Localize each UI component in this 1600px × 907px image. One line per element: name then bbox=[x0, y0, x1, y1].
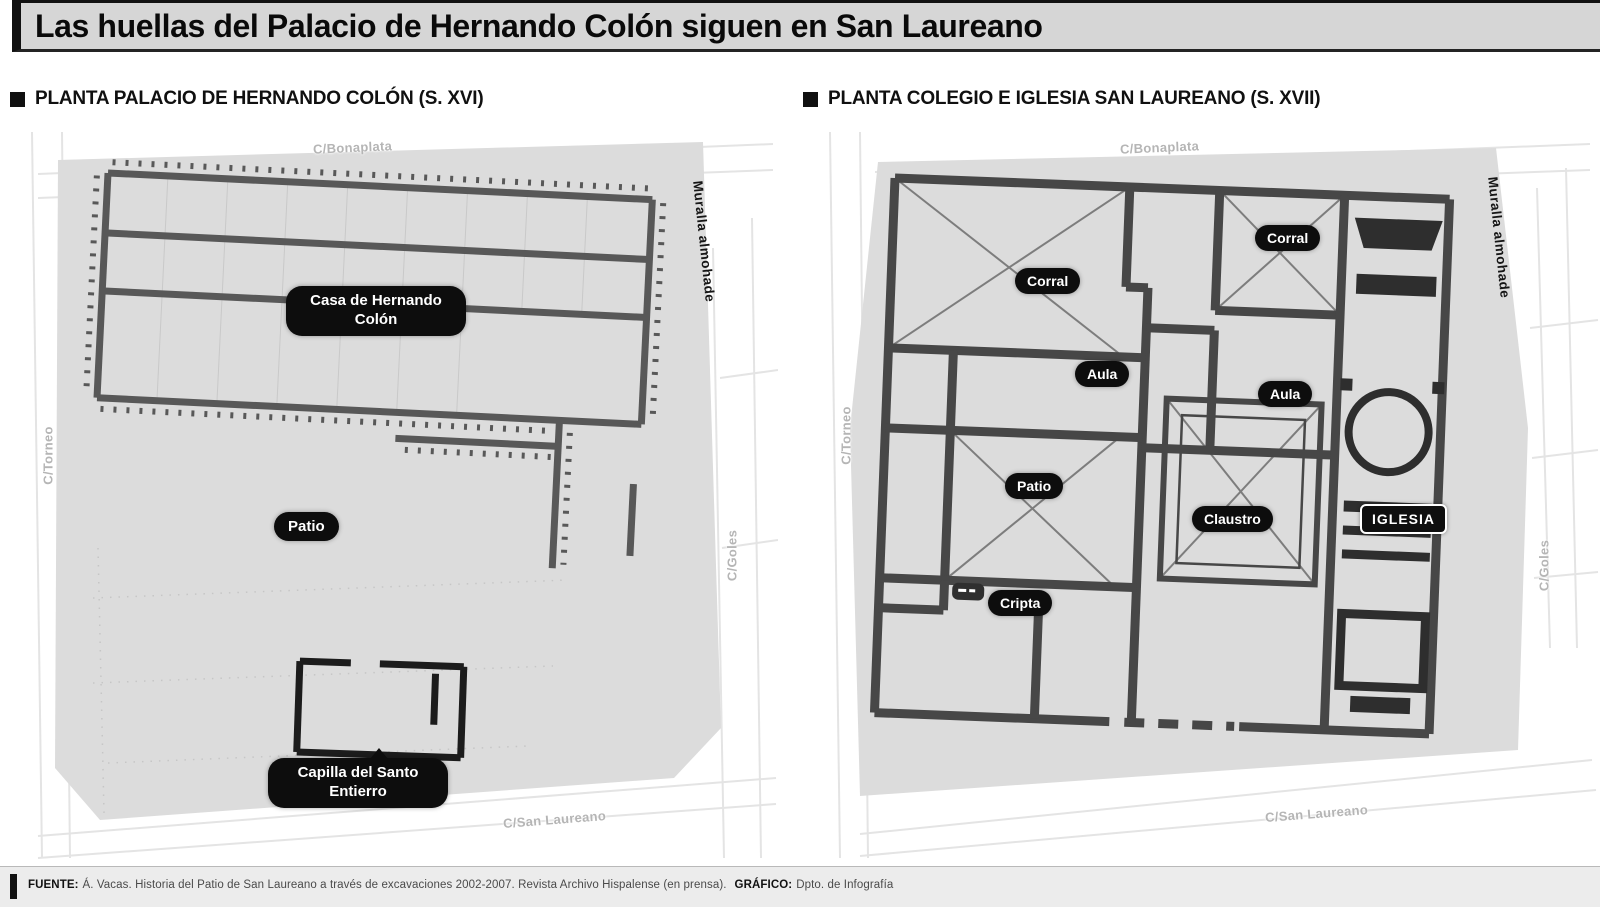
room-label-corral-right: Corral bbox=[1255, 225, 1320, 251]
street-label-right: C/Goles bbox=[725, 518, 740, 594]
credit-label: GRÁFICO: bbox=[735, 879, 793, 891]
footer: FUENTE:Á. Vacas. Historia del Patio de S… bbox=[0, 866, 1600, 907]
source-text: Á. Vacas. Historia del Patio de San Laur… bbox=[83, 879, 727, 891]
room-label-casa: Casa de Hernando Colón bbox=[286, 286, 466, 336]
heading-colegio: PLANTA COLEGIO E IGLESIA SAN LAUREANO (S… bbox=[803, 88, 1320, 110]
bullet-square-icon bbox=[10, 92, 25, 107]
room-label-capilla: Capilla del Santo Entierro bbox=[268, 758, 448, 808]
room-label-aula-left: Aula bbox=[1075, 361, 1129, 387]
small-plan-mark bbox=[952, 583, 985, 601]
street-label-right: C/Goles bbox=[1537, 528, 1552, 604]
street-label-left: C/Torneo bbox=[839, 398, 854, 474]
infographic: Las huellas del Palacio de Hernando Coló… bbox=[0, 0, 1600, 907]
page-title: Las huellas del Palacio de Hernando Coló… bbox=[21, 3, 1600, 44]
heading-palacio: PLANTA PALACIO DE HERNANDO COLÓN (S. XVI… bbox=[10, 88, 484, 110]
room-label-corral-left: Corral bbox=[1015, 268, 1080, 294]
credit-text: Dpto. de Infografía bbox=[796, 879, 893, 891]
room-label-patio: Patio bbox=[1005, 473, 1063, 499]
colegio-plan-canvas bbox=[800, 128, 1600, 862]
bullet-square-icon bbox=[803, 92, 818, 107]
heading-colegio-text: PLANTA COLEGIO E IGLESIA SAN LAUREANO (S… bbox=[828, 88, 1320, 110]
title-bar: Las huellas del Palacio de Hernando Coló… bbox=[12, 0, 1600, 52]
heading-palacio-text: PLANTA PALACIO DE HERNANDO COLÓN (S. XVI… bbox=[35, 88, 484, 110]
palacio-plan: C/Bonaplata C/Torneo Muralla almohade C/… bbox=[8, 128, 778, 862]
palacio-plan-canvas bbox=[8, 128, 778, 862]
source-label: FUENTE: bbox=[28, 879, 79, 891]
room-label-patio: Patio bbox=[274, 512, 339, 541]
room-label-cripta: Cripta bbox=[988, 590, 1052, 616]
street-label-left: C/Torneo bbox=[41, 418, 56, 494]
colegio-plan: C/Bonaplata C/Torneo Muralla almohade C/… bbox=[800, 128, 1600, 862]
room-label-iglesia: IGLESIA bbox=[1360, 504, 1447, 534]
room-label-claustro: Claustro bbox=[1192, 506, 1273, 532]
room-label-aula-right: Aula bbox=[1258, 381, 1312, 407]
pointer-icon bbox=[370, 748, 388, 759]
footer-accent-bar bbox=[10, 874, 17, 899]
source-line: FUENTE:Á. Vacas. Historia del Patio de S… bbox=[28, 879, 893, 891]
